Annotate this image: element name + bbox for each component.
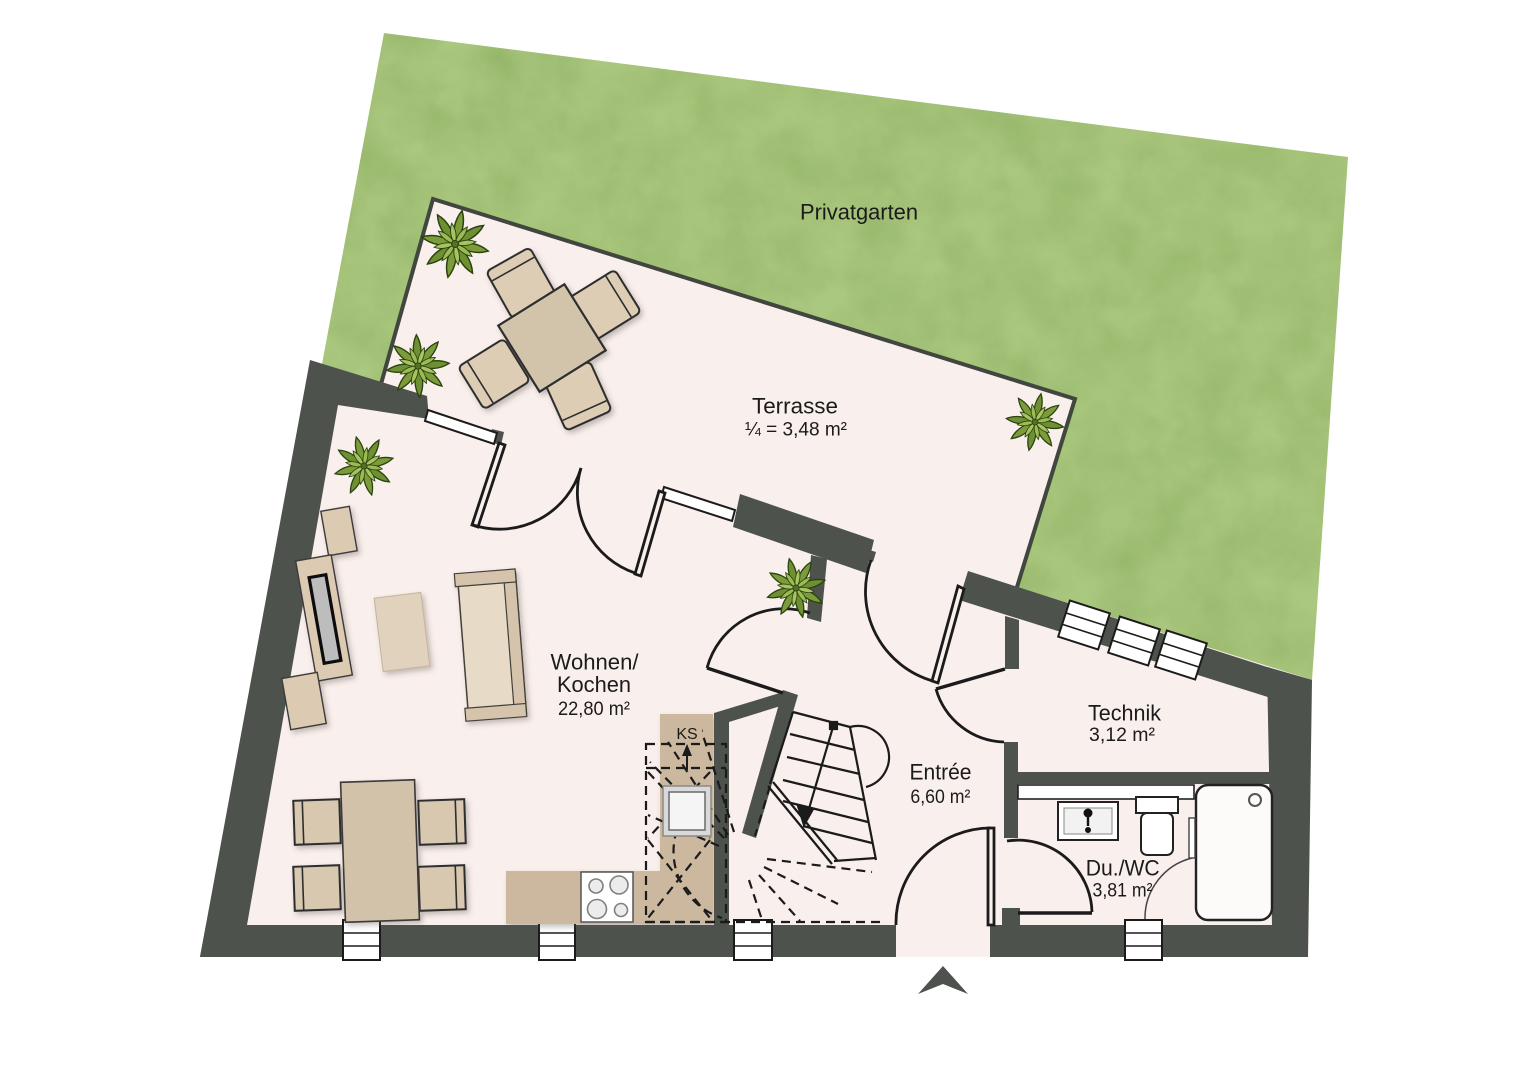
svg-text:Du./WC: Du./WC <box>1086 856 1160 881</box>
svg-text:3,81 m²: 3,81 m² <box>1093 880 1153 902</box>
svg-text:22,80 m²: 22,80 m² <box>558 698 630 720</box>
svg-text:3,12 m²: 3,12 m² <box>1089 724 1156 746</box>
svg-text:Entrée: Entrée <box>910 760 972 785</box>
svg-text:Privatgarten: Privatgarten <box>800 200 918 225</box>
svg-text:Technik: Technik <box>1088 701 1162 726</box>
svg-text:Terrasse: Terrasse <box>752 394 838 419</box>
svg-text:Wohnen/: Wohnen/ <box>551 650 640 675</box>
svg-text:Kochen: Kochen <box>557 672 631 697</box>
svg-text:KS: KS <box>676 726 697 743</box>
svg-text:¼ = 3,48 m²: ¼ = 3,48 m² <box>745 419 847 441</box>
svg-text:6,60 m²: 6,60 m² <box>910 786 970 808</box>
